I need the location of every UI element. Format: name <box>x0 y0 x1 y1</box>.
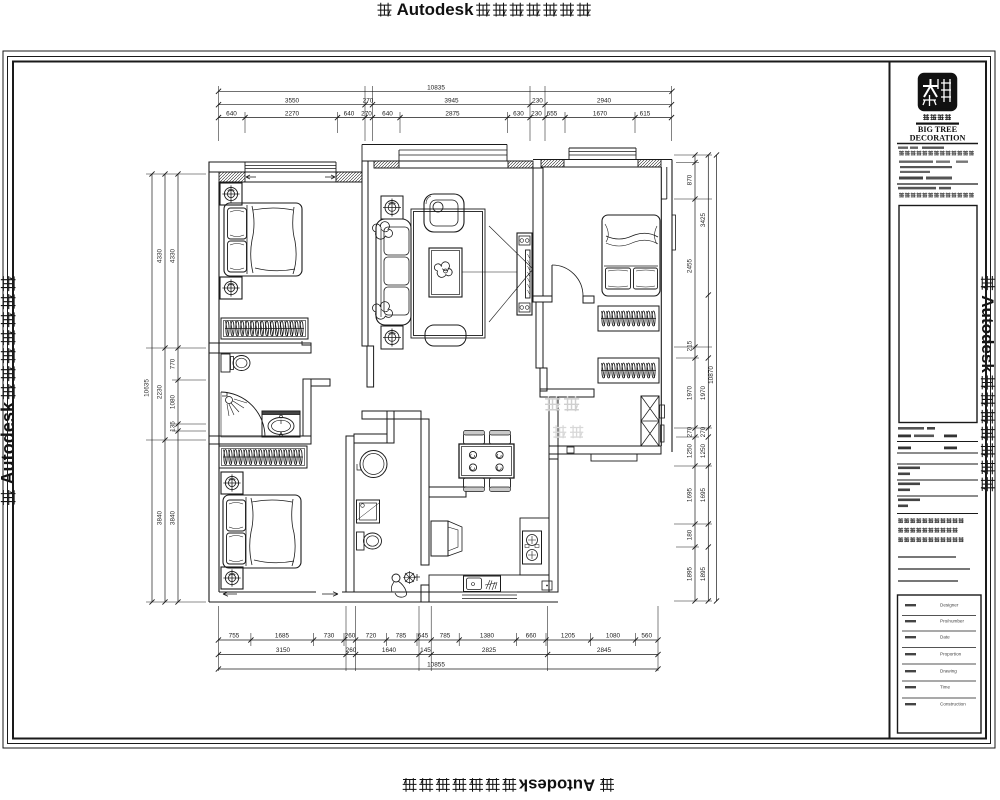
svg-text:785: 785 <box>396 633 407 640</box>
svg-text:645: 645 <box>418 633 429 640</box>
svg-text:630: 630 <box>513 111 524 118</box>
svg-text:215: 215 <box>687 340 694 351</box>
svg-text:615: 615 <box>640 111 651 118</box>
svg-text:230: 230 <box>531 111 542 118</box>
svg-text:Construction: Construction <box>940 702 966 707</box>
svg-text:Time: Time <box>940 685 950 690</box>
svg-text:1640: 1640 <box>382 647 397 654</box>
svg-text:Autodesk: Autodesk <box>978 295 997 373</box>
svg-text:Drawing: Drawing <box>940 669 957 674</box>
svg-text:180: 180 <box>687 529 694 540</box>
svg-text:2940: 2940 <box>597 98 612 105</box>
svg-text:135: 135 <box>170 421 177 432</box>
svg-text:10635: 10635 <box>144 379 151 397</box>
svg-text:1080: 1080 <box>170 394 177 409</box>
svg-text:1205: 1205 <box>561 633 576 640</box>
svg-text:4330: 4330 <box>170 248 177 263</box>
svg-text:770: 770 <box>170 358 177 369</box>
svg-text:785: 785 <box>440 633 451 640</box>
svg-text:655: 655 <box>547 111 558 118</box>
svg-text:1895: 1895 <box>687 566 694 581</box>
svg-text:720: 720 <box>366 633 377 640</box>
svg-text:730: 730 <box>324 633 335 640</box>
svg-text:270: 270 <box>361 111 372 118</box>
svg-text:3840: 3840 <box>157 510 164 525</box>
svg-text:10870: 10870 <box>708 366 715 384</box>
svg-text:10855: 10855 <box>427 662 445 669</box>
svg-text:230: 230 <box>532 98 543 105</box>
svg-text:2270: 2270 <box>285 111 300 118</box>
svg-text:3150: 3150 <box>276 647 291 654</box>
svg-text:Autodesk: Autodesk <box>397 0 475 19</box>
svg-text:1250: 1250 <box>700 443 707 458</box>
svg-text:640: 640 <box>344 111 355 118</box>
svg-text:Pro/number: Pro/number <box>940 619 964 624</box>
svg-text:Proportion: Proportion <box>940 652 962 657</box>
svg-text:2845: 2845 <box>597 647 612 654</box>
svg-text:10835: 10835 <box>427 84 445 91</box>
svg-text:1685: 1685 <box>275 633 290 640</box>
svg-text:3840: 3840 <box>170 510 177 525</box>
svg-text:1250: 1250 <box>687 443 694 458</box>
svg-text:DECORATION: DECORATION <box>910 134 966 143</box>
svg-text:2230: 2230 <box>157 384 164 399</box>
svg-text:1380: 1380 <box>480 633 495 640</box>
svg-text:560: 560 <box>641 633 652 640</box>
svg-text:640: 640 <box>382 111 393 118</box>
svg-text:145: 145 <box>420 647 431 654</box>
svg-text:1695: 1695 <box>687 487 694 502</box>
svg-text:1695: 1695 <box>700 487 707 502</box>
svg-text:1080: 1080 <box>606 633 621 640</box>
svg-text:660: 660 <box>526 633 537 640</box>
svg-text:3945: 3945 <box>444 98 459 105</box>
svg-text:260: 260 <box>346 647 357 654</box>
svg-text:Autodesk: Autodesk <box>518 775 595 794</box>
svg-text:755: 755 <box>229 633 240 640</box>
svg-text:1970: 1970 <box>700 385 707 400</box>
svg-text:4330: 4330 <box>157 248 164 263</box>
svg-text:260: 260 <box>345 633 356 640</box>
svg-text:1670: 1670 <box>593 111 608 118</box>
svg-text:1970: 1970 <box>687 385 694 400</box>
svg-text:3550: 3550 <box>285 98 300 105</box>
svg-text:2875: 2875 <box>445 111 460 118</box>
svg-text:3425: 3425 <box>700 212 707 227</box>
svg-text:270: 270 <box>363 98 374 105</box>
svg-text:Designer: Designer <box>940 603 959 608</box>
svg-text:640: 640 <box>226 111 237 118</box>
svg-text:1895: 1895 <box>700 566 707 581</box>
svg-text:2825: 2825 <box>482 647 497 654</box>
svg-text:2455: 2455 <box>687 258 694 273</box>
svg-text:Date: Date <box>940 635 950 640</box>
svg-text:870: 870 <box>687 174 694 185</box>
